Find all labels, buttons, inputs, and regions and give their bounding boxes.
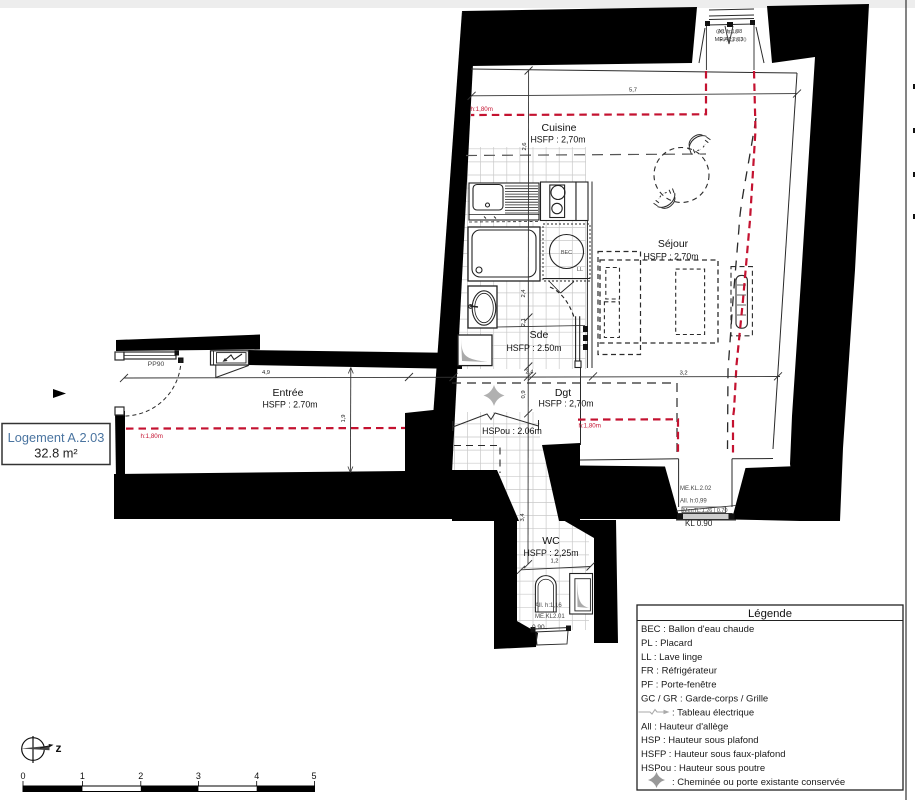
svg-text:HSFP : 2.70m: HSFP : 2.70m <box>262 400 317 410</box>
svg-text:Dgt: Dgt <box>555 387 571 399</box>
svg-text:All : Hauteur d'allège: All : Hauteur d'allège <box>641 721 728 732</box>
svg-text:2,4: 2,4 <box>525 370 534 376</box>
svg-text:FR : Réfrigérateur: FR : Réfrigérateur <box>641 666 717 677</box>
svg-text:LL : Lave linge: LL : Lave linge <box>641 652 702 663</box>
svg-text:PP90: PP90 <box>148 361 165 368</box>
svg-text:MenTL:1.26 | 0.70: MenTL:1.26 | 0.70 <box>683 508 728 514</box>
svg-text:2: 2 <box>138 771 143 781</box>
svg-text:1: 1 <box>80 771 85 781</box>
svg-text:HSP : Hauteur sous plafond: HSP : Hauteur sous plafond <box>641 735 759 746</box>
svg-text:HSPou : Hauteur sous poutre: HSPou : Hauteur sous poutre <box>641 763 765 774</box>
svg-text:5: 5 <box>311 771 316 781</box>
svg-text:5,7: 5,7 <box>629 88 637 94</box>
svg-text:HSFP : 2.50m: HSFP : 2.50m <box>506 343 561 353</box>
svg-text:: Tableau électrique: : Tableau électrique <box>672 707 754 718</box>
svg-text:LL: LL <box>577 267 583 273</box>
svg-text:2,6: 2,6 <box>522 142 528 150</box>
svg-text:ME.KL2.01: ME.KL2.01 <box>535 614 565 620</box>
svg-text:Sde: Sde <box>530 329 549 341</box>
svg-text:BEC: BEC <box>561 250 572 256</box>
svg-text:h:1,80m: h:1,80m <box>471 106 493 113</box>
svg-text:PF : Porte-fenêtre: PF : Porte-fenêtre <box>641 680 717 691</box>
svg-text:All. h:1,16: All. h:1,16 <box>535 603 562 609</box>
svg-text:All. h:0,99: All. h:0,99 <box>680 499 707 505</box>
svg-text:ME.KL.2.02: ME.KL.2.02 <box>680 486 712 492</box>
svg-text:HSFP : 2,70m: HSFP : 2,70m <box>643 252 698 262</box>
svg-text:0,9: 0,9 <box>521 390 527 398</box>
svg-text:HSFP : 2,70m: HSFP : 2,70m <box>530 135 585 145</box>
svg-text:4,9: 4,9 <box>262 370 270 376</box>
svg-text:3,4: 3,4 <box>520 513 526 522</box>
svg-text:GC / GR : Garde-corps / Grille: GC / GR : Garde-corps / Grille <box>641 694 768 705</box>
svg-text:Séjour: Séjour <box>658 238 689 250</box>
svg-text:HSFP : 2,70m: HSFP : 2,70m <box>538 399 593 409</box>
svg-text:Cuisine: Cuisine <box>541 122 576 134</box>
svg-text:Légende: Légende <box>748 608 792 620</box>
svg-text:1,9: 1,9 <box>341 414 347 422</box>
svg-text:2,4: 2,4 <box>521 289 527 298</box>
svg-text:1,2: 1,2 <box>550 559 558 565</box>
svg-text:h:1,80m: h:1,80m <box>141 433 163 440</box>
svg-text:: Cheminée ou porte existante: : Cheminée ou porte existante conservée <box>672 777 845 788</box>
svg-text:HSFP : Hauteur sous faux-plafo: HSFP : Hauteur sous faux-plafond <box>641 749 786 760</box>
svg-text:0: 0 <box>20 771 25 781</box>
svg-text:3: 3 <box>196 771 201 781</box>
svg-text:2,1: 2,1 <box>521 318 527 326</box>
svg-text:HSFP : 2,25m: HSFP : 2,25m <box>523 548 578 558</box>
svg-text:Logement A.2.03: Logement A.2.03 <box>8 430 105 445</box>
svg-text:BEC : Ballon d'eau chaude: BEC : Ballon d'eau chaude <box>641 624 754 635</box>
svg-text:HSPou : 2.06m: HSPou : 2.06m <box>482 426 542 436</box>
svg-text:z: z <box>56 741 62 755</box>
svg-text:WC: WC <box>542 535 560 547</box>
svg-text:0.90: 0.90 <box>532 624 545 631</box>
svg-text:Entrée: Entrée <box>273 387 304 399</box>
svg-text:GC h:1.0: GC h:1.0 <box>716 30 738 36</box>
svg-text:KL 0.90: KL 0.90 <box>685 519 713 528</box>
svg-text:PF.A2 0.70: PF.A2 0.70 <box>720 38 747 44</box>
svg-text:3,2: 3,2 <box>680 370 688 376</box>
svg-text:PL : Placard: PL : Placard <box>641 638 692 649</box>
svg-text:h:1,80m: h:1,80m <box>579 422 601 429</box>
svg-text:32.8 m²: 32.8 m² <box>34 446 78 461</box>
svg-text:4: 4 <box>254 771 259 781</box>
